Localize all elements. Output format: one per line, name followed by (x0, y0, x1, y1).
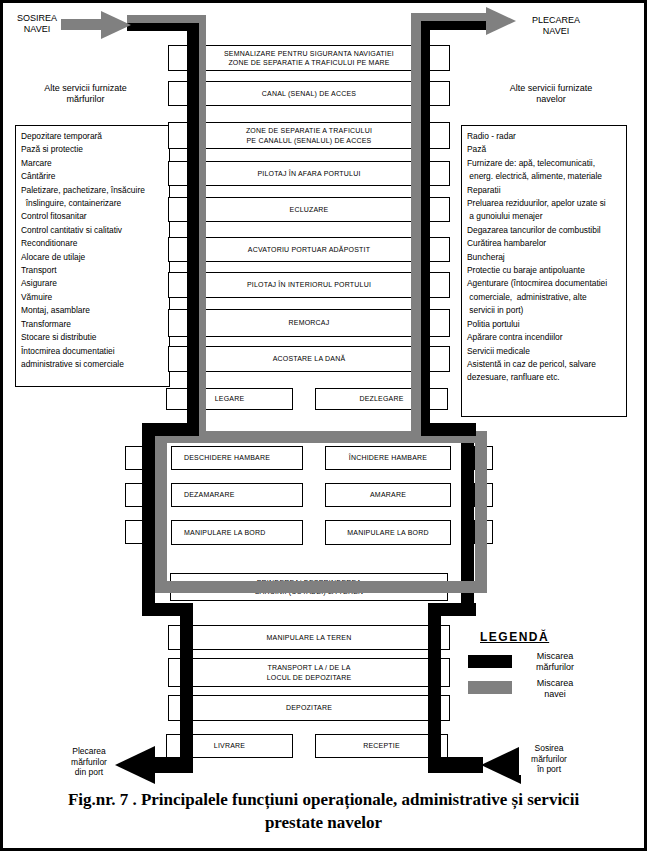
flow-box-transport-depozitare: TRANSPORT LA / DE LA LOCUL DE DEPOZITARE (168, 658, 450, 687)
flow-box-deschidere-hambare: DESCHIDERE HAMBARE (171, 446, 303, 470)
cargo-path-lower-right-vertical (428, 603, 441, 773)
cargo-path-mid-left-vertical (142, 423, 155, 616)
cargo-entry-arrow-shaft (428, 757, 483, 773)
figure-caption: Fig.nr. 7 . Principalele funcțiuni opera… (3, 789, 644, 835)
flow-box-pilotaj-afara: PILOTAJ ÎN AFARA PORTULUI (168, 161, 450, 186)
ship-arrival-arrow-icon (101, 11, 131, 39)
flow-box-remorcaj: REMORCAJ (168, 309, 450, 337)
flow-box-zone-separatie: ZONE DE SEPARATIE A TRAFICULUI PE CANALU… (168, 122, 450, 149)
cargo-services-list: Depozitare temporară Pază si protectie M… (15, 125, 170, 387)
side-right-header: Alte servicii furnizate navelor (486, 83, 616, 106)
cargo-path-top-right-horizontal (421, 21, 486, 30)
legend-cargo-swatch (468, 655, 512, 668)
flow-box-ecluzare: ECLUZARE (168, 197, 450, 222)
flow-box-inchidere-hambare: ÎNCHIDERE HAMBARE (325, 446, 451, 470)
flow-box-acvatoriu: ACVATORIU PORTUAR ADĂPOSTIT (168, 237, 450, 262)
legend-title: LEGENDĂ (480, 630, 549, 644)
cargo-entry-arrow-icon (481, 746, 521, 784)
flow-box-depozitare: DEPOZITARE (168, 695, 450, 721)
ship-services-list: Radio - radar Pază Furnizare de: apă, te… (461, 125, 627, 417)
flow-box-pilotaj-interior: PILOTAJ ÎN INTERIORUL PORTULUI (168, 272, 450, 298)
cargo-path-left-jog (142, 423, 199, 436)
ship-path-left-vertical (199, 15, 206, 443)
port-functions-diagram: SOSIREA NAVEI PLECAREA NAVEI Alte servic… (0, 0, 647, 851)
cargo-path-right-jog (421, 423, 476, 436)
ship-path-right-vertical (411, 13, 421, 443)
legend-cargo-label: Miscarea mărfurilor (515, 651, 595, 674)
flow-box-acostare: ACOSTARE LA DANĂ (168, 346, 450, 372)
flow-box-legare: LEGARE (166, 388, 293, 410)
flow-box-dezamarare: DEZAMARARE (171, 483, 303, 507)
cargo-path-left-vertical (187, 23, 199, 436)
side-left-header: Alte servicii furnizate mărfurilor (28, 83, 143, 106)
ship-path-top-right-horizontal (411, 13, 490, 21)
ship-arrival-label: SOSIREA NAVEI (11, 13, 63, 36)
legend-ship-swatch (468, 681, 512, 694)
flow-box-manipulare-teren: MANIPULARE LA TEREN (168, 625, 450, 650)
ship-departure-arrow-icon (486, 7, 516, 35)
legend-ship-label: Miscarea navei (515, 678, 595, 701)
cargo-entry-label: Sosirea mărfurilor în port (519, 743, 579, 775)
ship-path-top-left-horizontal (127, 15, 206, 23)
cargo-path-lower-left-vertical (180, 603, 193, 773)
flow-box-manipulare-bord-right: MANIPULARE LA BORD (325, 520, 451, 545)
flow-box-canal-acces: CANAL (SENAL) DE ACCES (168, 81, 450, 106)
flow-box-amarare: AMARARE (325, 483, 451, 507)
flow-box-manipulare-bord-left: MANIPULARE LA BORD (171, 520, 303, 545)
cargo-exit-arrow-icon (115, 746, 155, 784)
cargo-exit-arrow-shaft (153, 757, 193, 773)
cargo-path-right-vertical (421, 30, 430, 436)
cargo-exit-label: Plecarea mărfurilor din port (61, 746, 117, 778)
flow-box-semnalizare: SEMNALIZARE PENTRU SIGURANTA NAVIGATIEI … (168, 45, 450, 71)
ship-arrival-arrow-shaft (61, 19, 103, 30)
ship-departure-label: PLECAREA NAVEI (519, 15, 593, 38)
